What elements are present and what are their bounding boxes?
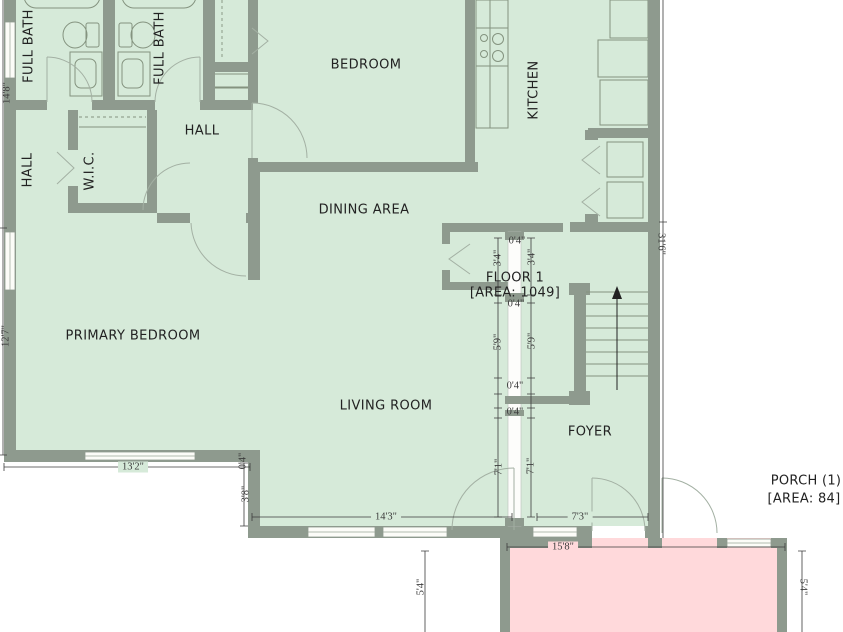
room-label-primary-bedroom: PRIMARY BEDROOM [66,329,201,344]
dim-chain-04-top: 0'4" [509,236,526,247]
dim-porch-depth-left: 5'4" [416,579,427,596]
room-dining-area [260,172,460,230]
dim-step: 3'8" [241,486,252,503]
room-label-full-bath-2: FULL BATH [153,11,168,85]
dim-chain-59-left: 5'9" [493,334,504,351]
room-hall-center [157,110,247,172]
room-foyer [521,404,646,524]
room-label-hall: HALL [185,124,220,139]
room-label-full-bath-1: FULL BATH [22,9,37,83]
dim-right-side: 31'6" [656,233,667,255]
dim-chain-71-left: 7'1" [494,459,505,476]
room-label-hall-side: HALL [21,153,36,188]
porch-region [510,548,777,632]
dim-lr-width: 14'3" [371,512,401,523]
room-label-bedroom: BEDROOM [331,58,402,73]
dim-foyer-width: 7'3" [568,512,593,523]
room-label-living-room: LIVING ROOM [340,399,433,414]
porch-area-label: [AREA: 84] [767,492,840,507]
dim-porch-width: 15'8" [548,542,578,553]
porch-name-label: PORCH (1) [771,474,842,489]
room-label-wic: W.I.C. [83,151,98,190]
room-living-room [260,232,505,524]
dim-chain-71-right: 7'1" [526,458,537,475]
dim-step-small: 0'4" [238,453,249,470]
dim-chain-34-right: 3'4" [527,249,538,266]
room-bedroom [258,0,465,160]
laundry-closet [585,130,648,230]
room-label-dining: DINING AREA [319,203,410,218]
dim-left-bottom: 12'7" [1,325,12,347]
floor-name-label: FLOOR 1 [486,271,544,286]
room-label-foyer: FOYER [568,425,612,440]
floorplan: FULL BATH FULL BATH HALL W.I.C. HALL BED… [0,0,843,632]
dim-chain-04-low2: 0'4" [507,407,524,418]
dim-pb-width: 13'2" [118,462,148,473]
room-label-kitchen: KITCHEN [527,60,542,119]
dim-left-top: 14'8" [2,82,13,104]
dim-chain-04-low1: 0'4" [507,381,524,392]
dim-chain-04-mid: 0'4" [508,299,525,310]
dim-porch-depth-right: 5'4" [798,579,809,596]
porch-door [662,478,717,533]
room-kitchen [475,0,648,128]
dim-chain-34-left: 3'4" [493,250,504,267]
dim-chain-59-right: 5'9" [527,333,538,350]
bedroom-closet [215,0,248,62]
